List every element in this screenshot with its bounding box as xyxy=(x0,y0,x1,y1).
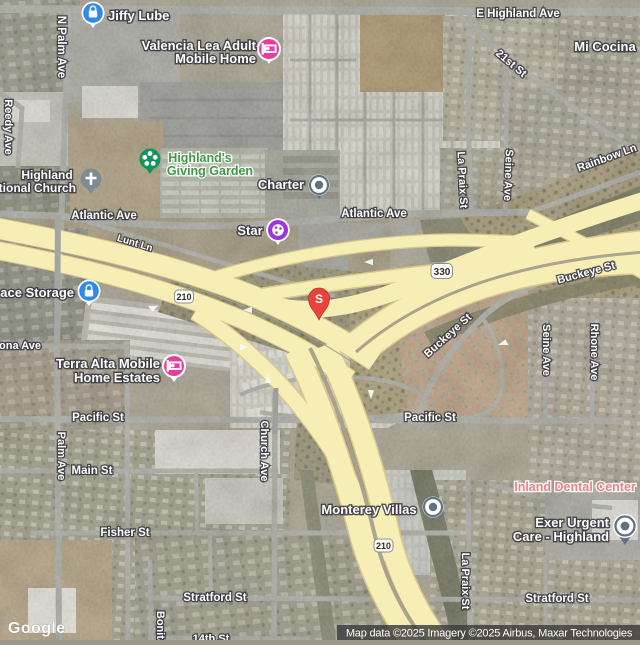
svg-text:ace Storage: ace Storage xyxy=(0,285,74,300)
svg-text:Care - Highland: Care - Highland xyxy=(513,529,609,544)
svg-text:Main St: Main St xyxy=(72,465,113,477)
svg-text:Giving Garden: Giving Garden xyxy=(167,164,253,178)
svg-text:E Highland Ave: E Highland Ave xyxy=(476,8,560,20)
svg-text:Charter: Charter xyxy=(258,177,304,192)
svg-text:Terra Alta Mobile: Terra Alta Mobile xyxy=(56,356,160,371)
svg-text:Inland Dental Center: Inland Dental Center xyxy=(514,480,636,494)
svg-text:Atlantic Ave: Atlantic Ave xyxy=(71,210,137,222)
svg-text:Highland's: Highland's xyxy=(168,151,231,165)
svg-text:210: 210 xyxy=(376,541,391,551)
svg-text:Pacific St: Pacific St xyxy=(404,412,456,424)
svg-text:lona Ave: lona Ave xyxy=(0,340,41,352)
svg-text:210: 210 xyxy=(176,292,191,302)
svg-text:Mobile Home: Mobile Home xyxy=(175,51,256,66)
svg-text:Jiffy Lube: Jiffy Lube xyxy=(108,8,169,23)
svg-text:Star: Star xyxy=(237,223,262,238)
svg-text:Highland: Highland xyxy=(21,168,72,182)
svg-text:14th St: 14th St xyxy=(193,633,230,640)
svg-text:Seine Ave: Seine Ave xyxy=(501,149,515,201)
svg-text:Pacific St: Pacific St xyxy=(72,412,124,424)
svg-text:S: S xyxy=(315,292,323,306)
svg-text:Rhone Ave: Rhone Ave xyxy=(588,324,600,381)
svg-text:Home Estates: Home Estates xyxy=(74,370,160,385)
svg-text:Church Ave: Church Ave xyxy=(258,421,270,482)
svg-text:Palm Ave: Palm Ave xyxy=(55,432,67,481)
svg-text:Fisher St: Fisher St xyxy=(100,527,149,539)
svg-text:Monterey Villas: Monterey Villas xyxy=(321,502,416,517)
svg-text:N Palm Ave: N Palm Ave xyxy=(55,16,67,78)
svg-text:330: 330 xyxy=(434,267,451,278)
svg-text:Exer Urgent: Exer Urgent xyxy=(535,515,609,530)
svg-text:Reedy Ave: Reedy Ave xyxy=(2,99,14,154)
svg-text:Mi Cocina: Mi Cocina xyxy=(574,39,636,54)
svg-text:Google: Google xyxy=(8,620,66,637)
svg-text:Stratford St: Stratford St xyxy=(183,592,246,604)
svg-text:Atlantic Ave: Atlantic Ave xyxy=(341,208,407,220)
svg-text:Stratford St: Stratford St xyxy=(525,593,588,605)
svg-text:Seine Ave: Seine Ave xyxy=(540,324,552,376)
svg-text:Bonita: Bonita xyxy=(154,611,166,640)
svg-text:National Church: National Church xyxy=(0,181,76,195)
svg-text:Map data ©2025 Imagery ©2025 A: Map data ©2025 Imagery ©2025 Airbus, Max… xyxy=(346,628,633,640)
svg-text:La Praix St: La Praix St xyxy=(459,553,471,610)
